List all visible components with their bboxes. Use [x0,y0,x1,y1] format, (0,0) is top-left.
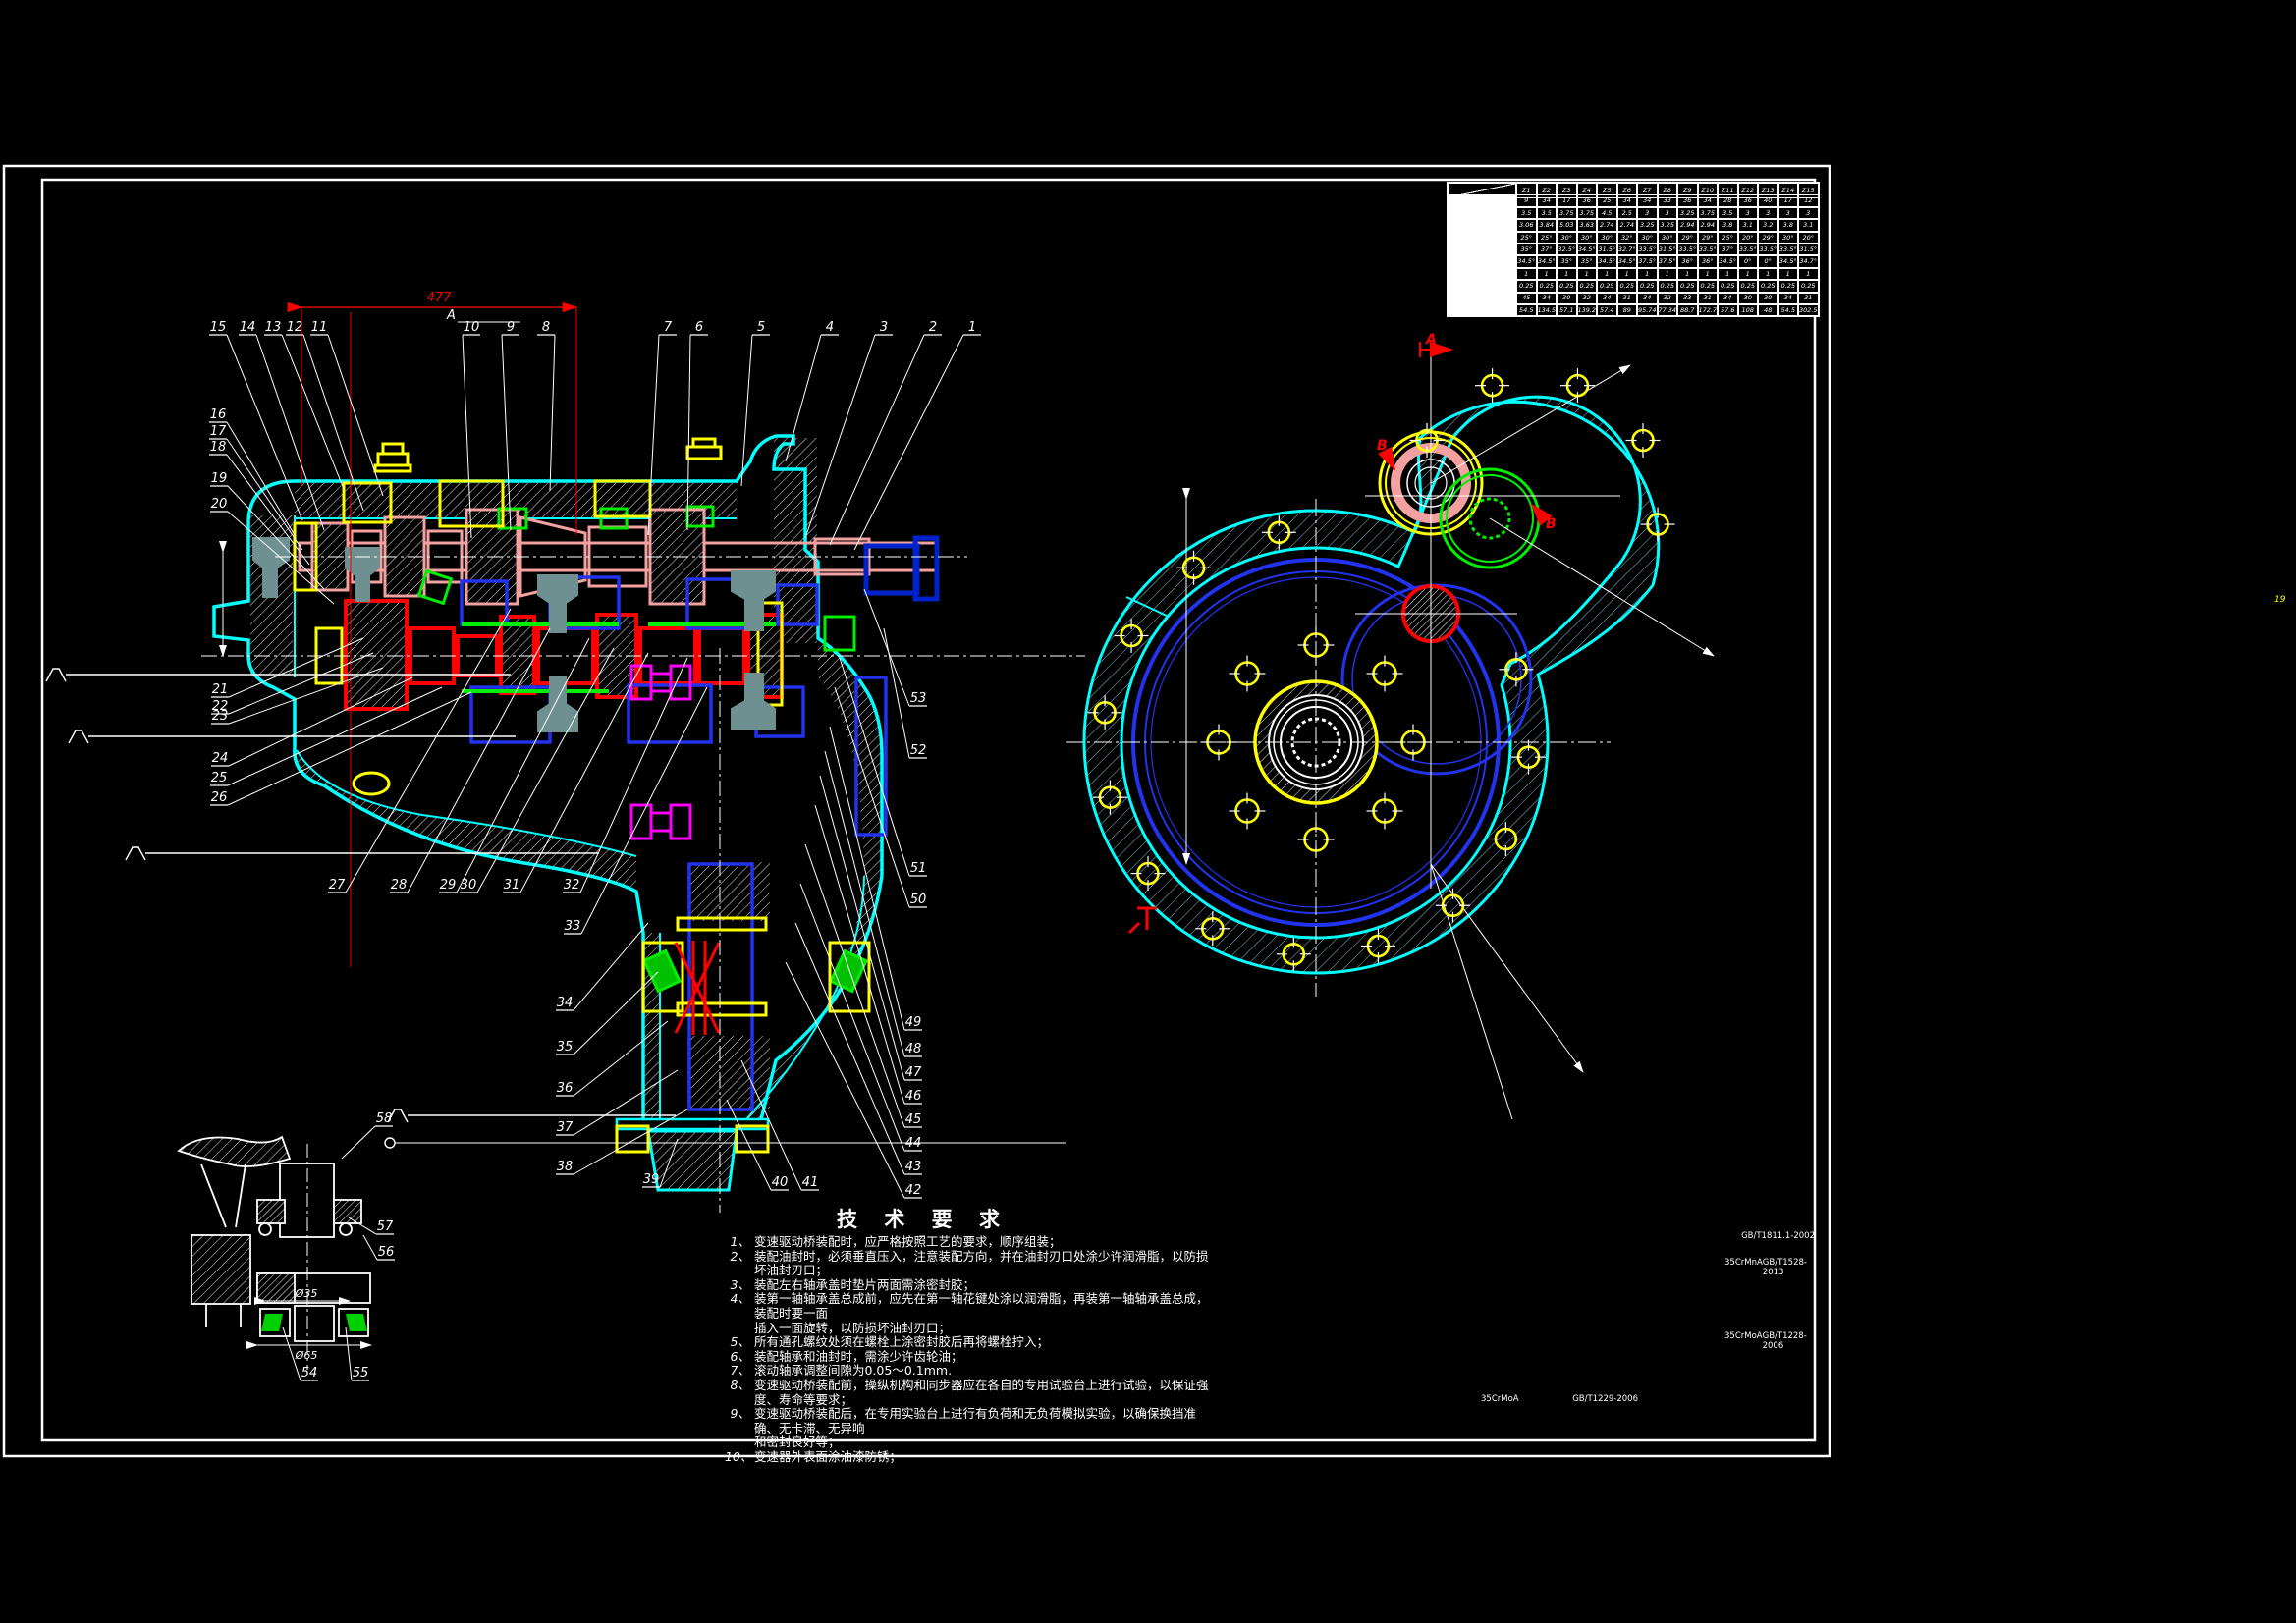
callout-label: 12 [287,320,303,335]
table-cell: 3 [1738,207,1759,219]
callout-label: 28 [391,878,408,893]
tech-requirement-item: 1、变速驱动桥装配时，应严格按照工艺的要求，顺序组装； [725,1235,1216,1250]
svg-text:A: A [446,308,456,323]
table-cell: 33 [1658,194,1678,206]
table-cell: 34.5° [1718,255,1738,267]
table-cell: 57.4 [1597,304,1617,316]
callout-label: 6 [695,320,703,335]
table-cell: 34.5° [1597,255,1617,267]
table-cell: 29° [1698,232,1719,243]
table-cell: 0.25 [1738,280,1759,292]
table-cell: 1 [1677,268,1698,280]
table-cell: 302.5 [1798,304,1819,316]
svg-text:B: B [1546,516,1557,532]
callout-label: 27 [329,878,346,893]
callout-leader [346,1327,352,1380]
table-cell: 0.25 [1597,280,1617,292]
tech-requirement-item: 8、变速驱动桥装配前，操纵机构和同步器应在各自的专用试验台上进行试验，以保证强度… [725,1379,1216,1407]
table-cell: 36° [1677,255,1698,267]
callout-label: 36 [557,1081,574,1096]
tech-requirement-item: 6、装配轴承和油封时，需涂少许齿轮油； [725,1350,1216,1365]
svg-text:A: A [1425,332,1437,348]
table-cell [1448,304,1516,316]
tech-requirement-item: 插入一面旋转，以防损坏油封刃口； [725,1322,1216,1336]
detail-dim-inner: Ø35 [295,1287,318,1300]
table-cell [1448,280,1516,292]
table-cell: 36 [1677,194,1698,206]
table-cell: 0.25 [1516,280,1537,292]
callout-label: 39 [643,1172,660,1187]
callout-label: 1 [968,320,976,335]
table-cell: 9 [1516,194,1537,206]
callout-label: 18 [210,440,227,455]
table-cell: 36° [1698,255,1719,267]
table-cell: 1 [1577,268,1598,280]
callout-leader [805,335,875,538]
table-cell: 32° [1617,232,1638,243]
table-cell: 34.5° [1516,255,1537,267]
table-cell: 0° [1758,255,1778,267]
callout-label: 49 [905,1015,922,1030]
callout-label: 37 [557,1120,574,1135]
table-cell: 31 [1698,293,1719,304]
table-cell: 34.5° [1577,243,1598,255]
output-coupling [866,538,937,599]
table-cell: 34 [1537,194,1558,206]
callout-label: 41 [802,1175,819,1190]
callout-label: 4 [826,320,834,335]
callout-label: 55 [353,1366,369,1380]
table-cell: 89 [1617,304,1638,316]
table-cell: 35° [1516,243,1537,255]
table-cell: 5.03 [1557,219,1577,231]
table-cell: 34 [1778,293,1799,304]
table-cell: 34.5° [1617,255,1638,267]
callout-leader [342,1126,375,1159]
table-cell: 0.25 [1677,280,1698,292]
tech-requirement-item: 和密封良好等； [725,1435,1216,1450]
table-cell: 34 [1698,194,1719,206]
table-cell [1448,232,1516,243]
dim-477: 477 [427,291,453,305]
table-cell: 20° [1798,232,1819,243]
callout-label: 47 [905,1065,922,1080]
callout-label: 16 [210,407,227,422]
callout-label: 13 [265,320,282,335]
table-cell: 3.5 [1718,207,1738,219]
table-cell: 0.25 [1758,280,1778,292]
callout-label: 57 [377,1219,394,1234]
table-cell: 45 [1516,293,1537,304]
callout-label: 45 [905,1112,922,1127]
standard-note-2: 35CrMnAGB/T1528-2013 [1724,1258,1815,1277]
table-cell: 35° [1557,255,1577,267]
table-cell: 30 [1758,293,1778,304]
table-cell: 30° [1577,232,1598,243]
table-cell: 30° [1637,232,1658,243]
table-cell: 2.94 [1698,219,1719,231]
callout-label: 48 [905,1042,922,1056]
table-cell: 0.25 [1698,280,1719,292]
table-cell: 34 [1597,293,1617,304]
callout-label: 33 [565,919,581,934]
table-cell: 35° [1577,255,1598,267]
table-cell: 31.5° [1597,243,1617,255]
callout-label: 20 [211,497,228,512]
table-cell: 3 [1658,207,1678,219]
table-cell: 34 [1637,194,1658,206]
table-cell: 0.25 [1637,280,1658,292]
tech-requirement-item: 9、变速驱动桥装配后，在专用实验台上进行有负荷和无负荷模拟实验，以确保换挡准确、… [725,1407,1216,1435]
callout-leader [800,884,904,1151]
table-cell: 3 [1798,207,1819,219]
table-cell: 0.25 [1617,280,1638,292]
callout-label: 24 [212,751,229,766]
corner-glyph: 19 [2274,595,2285,605]
table-cell: 77.34 [1658,304,1678,316]
standard-note-3: 35CrMoAGB/T1228-2006 [1724,1331,1815,1351]
callout-leader [854,335,963,550]
table-cell: 40 [1758,194,1778,206]
table-cell: 17 [1557,194,1577,206]
table-cell: 3.25 [1677,207,1698,219]
callout-label: 31 [504,878,520,893]
table-cell: 34 [1537,293,1558,304]
tech-requirement-item: 3、装配左右轴承盖时垫片两面需涂密封胶； [725,1278,1216,1293]
section-glyphs [46,669,676,1122]
table-cell: 1 [1617,268,1638,280]
callout-label: 52 [910,743,927,758]
callout-label: 51 [910,861,927,876]
table-cell: 1 [1557,268,1577,280]
table-cell: 25° [1718,232,1738,243]
table-cell: 33.5° [1637,243,1658,255]
cad-drawing-sheet: { "drawing": { "tech_title": "技 术 要 求", … [0,0,2296,1623]
table-cell: 2.74 [1597,219,1617,231]
tech-requirement-item: 7、滚动轴承调整间隙为0.05～0.1mm. [725,1364,1216,1379]
table-cell: 28 [1718,194,1738,206]
table-cell: 32.7° [1617,243,1638,255]
table-cell: 0.25 [1537,280,1558,292]
callout-label: 43 [905,1160,922,1174]
callout-label: 8 [542,320,550,335]
table-cell: 172.7 [1698,304,1719,316]
table-cell: 31 [1798,293,1819,304]
table-cell: 57.6 [1718,304,1738,316]
table-cell: 1 [1537,268,1558,280]
table-cell [1448,219,1516,231]
table-cell: 25 [1597,194,1617,206]
callout-label: 40 [772,1175,789,1190]
callout-label: 30 [461,878,477,893]
callout-leader [227,335,302,520]
table-cell: 3.8 [1718,219,1738,231]
table-cell: 3.25 [1637,219,1658,231]
callout-label: 35 [557,1040,574,1055]
table-cell: 31.5° [1658,243,1678,255]
table-cell: 30° [1597,232,1617,243]
table-cell: 29° [1758,232,1778,243]
table-cell: 0.25 [1718,280,1738,292]
table-cell: 31.5° [1798,243,1819,255]
table-cell: 3.1 [1798,219,1819,231]
callout-label: 7 [664,320,673,335]
table-cell: 30 [1557,293,1577,304]
table-cell: 32.5° [1557,243,1577,255]
callout-label: 34 [557,996,574,1010]
table-cell: 0.25 [1557,280,1577,292]
callout-label: 32 [564,878,580,893]
table-cell: 54.5 [1778,304,1799,316]
table-cell: 37.5° [1637,255,1658,267]
callout-label: 44 [905,1136,922,1151]
table-cell: 20° [1738,232,1759,243]
table-cell: 57.1 [1557,304,1577,316]
table-cell: 32 [1577,293,1598,304]
callout-label: 10 [464,320,480,335]
callout-label: 11 [311,320,328,335]
table-cell [1448,255,1516,267]
callout-leader [550,335,555,491]
tech-requirement-item: 5、所有通孔螺纹处须在螺栓上涂密封胶后再将螺栓拧入； [725,1335,1216,1350]
callout-label: 26 [211,790,228,805]
table-cell: 30° [1557,232,1577,243]
table-cell: 33.5° [1738,243,1759,255]
table-cell: 3.06 [1516,219,1537,231]
table-cell: 3 [1758,207,1778,219]
table-cell: 37.5° [1658,255,1678,267]
callout-label: 9 [507,320,515,335]
table-cell: 30° [1778,232,1799,243]
callout-label: 58 [376,1111,393,1126]
table-cell: 1 [1738,268,1759,280]
table-cell: 34 [1637,293,1658,304]
table-cell: 3 [1637,207,1658,219]
table-cell: 1 [1698,268,1719,280]
callout-leader [282,335,344,489]
table-cell: 33.5° [1698,243,1719,255]
tech-requirement-item: 4、装第一轴轴承盖总成前，应先在第一轴花键处涂以润滑脂，再装第一轴轴承盖总成，装… [725,1292,1216,1321]
table-cell: 17 [1778,194,1799,206]
table-cell: 108 [1738,304,1759,316]
table-cell [1448,194,1516,206]
table-cell: 48 [1758,304,1778,316]
table-cell: 3.5 [1516,207,1537,219]
callout-leader [363,1235,377,1260]
svg-text:B: B [1377,438,1388,454]
table-cell: 1 [1778,268,1799,280]
table-cell [1448,293,1516,304]
callout-label: 29 [440,878,457,893]
table-cell: 33.5° [1758,243,1778,255]
table-cell: 1 [1637,268,1658,280]
table-cell: 139.2 [1577,304,1598,316]
callout-label: 42 [905,1183,922,1198]
table-cell: 0.25 [1658,280,1678,292]
table-cell: 0.25 [1798,280,1819,292]
table-cell: 3 [1778,207,1799,219]
detail-dim-outer: Ø65 [295,1349,318,1362]
callout-label: 50 [910,893,927,907]
callout-label: 23 [212,709,229,724]
callout-leader [574,923,648,1010]
table-cell: 36 [1577,194,1598,206]
callout-label: 46 [905,1089,922,1104]
table-cell: 1 [1658,268,1678,280]
table-cell: 54.5 [1516,304,1537,316]
table-cell: 33.5° [1677,243,1698,255]
table-cell: 0.25 [1577,280,1598,292]
table-cell: 3.75 [1577,207,1598,219]
table-cell: 3.1 [1738,219,1759,231]
table-cell [1448,207,1516,219]
callout-label: 25 [211,771,228,785]
callout-leader [805,844,904,1127]
diff-spider [631,666,690,839]
table-cell: 1 [1516,268,1537,280]
table-cell: 0° [1738,255,1759,267]
table-cell: 30 [1738,293,1759,304]
table-cell: 36 [1738,194,1759,206]
callout-label: 3 [880,320,888,335]
table-cell: 29° [1677,232,1698,243]
table-cell: 3.2 [1758,219,1778,231]
table-cell: 3.8 [1778,219,1799,231]
table-cell [1448,268,1516,280]
table-cell: 2.94 [1677,219,1698,231]
table-cell: 134.5 [1537,304,1558,316]
callout-label: 15 [210,320,227,335]
table-cell: 3.5 [1537,207,1558,219]
callout-label: 56 [378,1245,395,1260]
table-cell: 2.5 [1617,207,1638,219]
table-cell: 3.25 [1658,219,1678,231]
callout-label: 38 [557,1160,574,1174]
callout-label: 21 [212,682,229,697]
callout-label: 54 [301,1366,318,1380]
callout-label: 53 [910,691,927,706]
table-cell: 95.74 [1637,304,1658,316]
table-cell: 30° [1658,232,1678,243]
tech-requirements-list: 1、变速驱动桥装配时，应严格按照工艺的要求，顺序组装；2、装配油封时，必须垂直压… [725,1235,1216,1465]
table-cell: 25° [1537,232,1558,243]
callout-leader [884,628,909,758]
table-cell: 37° [1718,243,1738,255]
table-cell: 1 [1597,268,1617,280]
callout-label: 14 [240,320,256,335]
callout-label: 5 [757,320,765,335]
table-cell: 34 [1718,293,1738,304]
table-cell: 37° [1537,243,1558,255]
table-cell: 34 [1617,194,1638,206]
standard-note-1: GB/T1811.1-2002 [1669,1231,1815,1241]
table-cell: 1 [1758,268,1778,280]
table-cell: 3.63 [1577,219,1598,231]
tech-requirement-item: 10、变速器外表面涂油漆防锈； [725,1450,1216,1465]
table-cell: 2.74 [1617,219,1638,231]
table-cell: 31 [1617,293,1638,304]
table-cell [1448,243,1516,255]
table-cell: 0.25 [1778,280,1799,292]
main-section-view: 477 A [46,291,1085,1213]
table-cell: 33 [1677,293,1698,304]
table-cell: 12 [1798,194,1819,206]
tech-requirement-item: 2、装配油封时，必须垂直压入，注意装配方向，并在油封刃口处涂少许润滑脂，以防损坏… [725,1250,1216,1278]
callout-label: 19 [211,471,228,486]
housing-band [1084,397,1659,973]
table-cell: 3.75 [1698,207,1719,219]
table-cell: 4.5 [1597,207,1617,219]
gear-parameter-table: Z1Z2Z3Z4Z5Z6Z7Z8Z9Z10Z11Z12Z13Z14Z159341… [1447,182,1820,317]
table-cell: 34.7° [1798,255,1819,267]
table-cell: 25° [1516,232,1537,243]
table-cell: 3.84 [1537,219,1558,231]
table-cell: 34.5° [1778,255,1799,267]
table-cell: 32 [1658,293,1678,304]
callout-label: 17 [210,424,227,439]
table-cell: 3.75 [1557,207,1577,219]
table-cell: 34.5° [1537,255,1558,267]
callout-label: 2 [929,320,937,335]
tech-requirements-title: 技 术 要 求 [776,1204,1070,1233]
standard-note-4: 35CrMoAGB/T1229-2006 [1481,1394,1638,1404]
table-cell: 88.7 [1677,304,1698,316]
table-cell: 1 [1718,268,1738,280]
table-cell: 33.5° [1778,243,1799,255]
end-view: A B B [1066,332,1714,1119]
callout-leader [349,1217,376,1234]
table-cell: 1 [1798,268,1819,280]
